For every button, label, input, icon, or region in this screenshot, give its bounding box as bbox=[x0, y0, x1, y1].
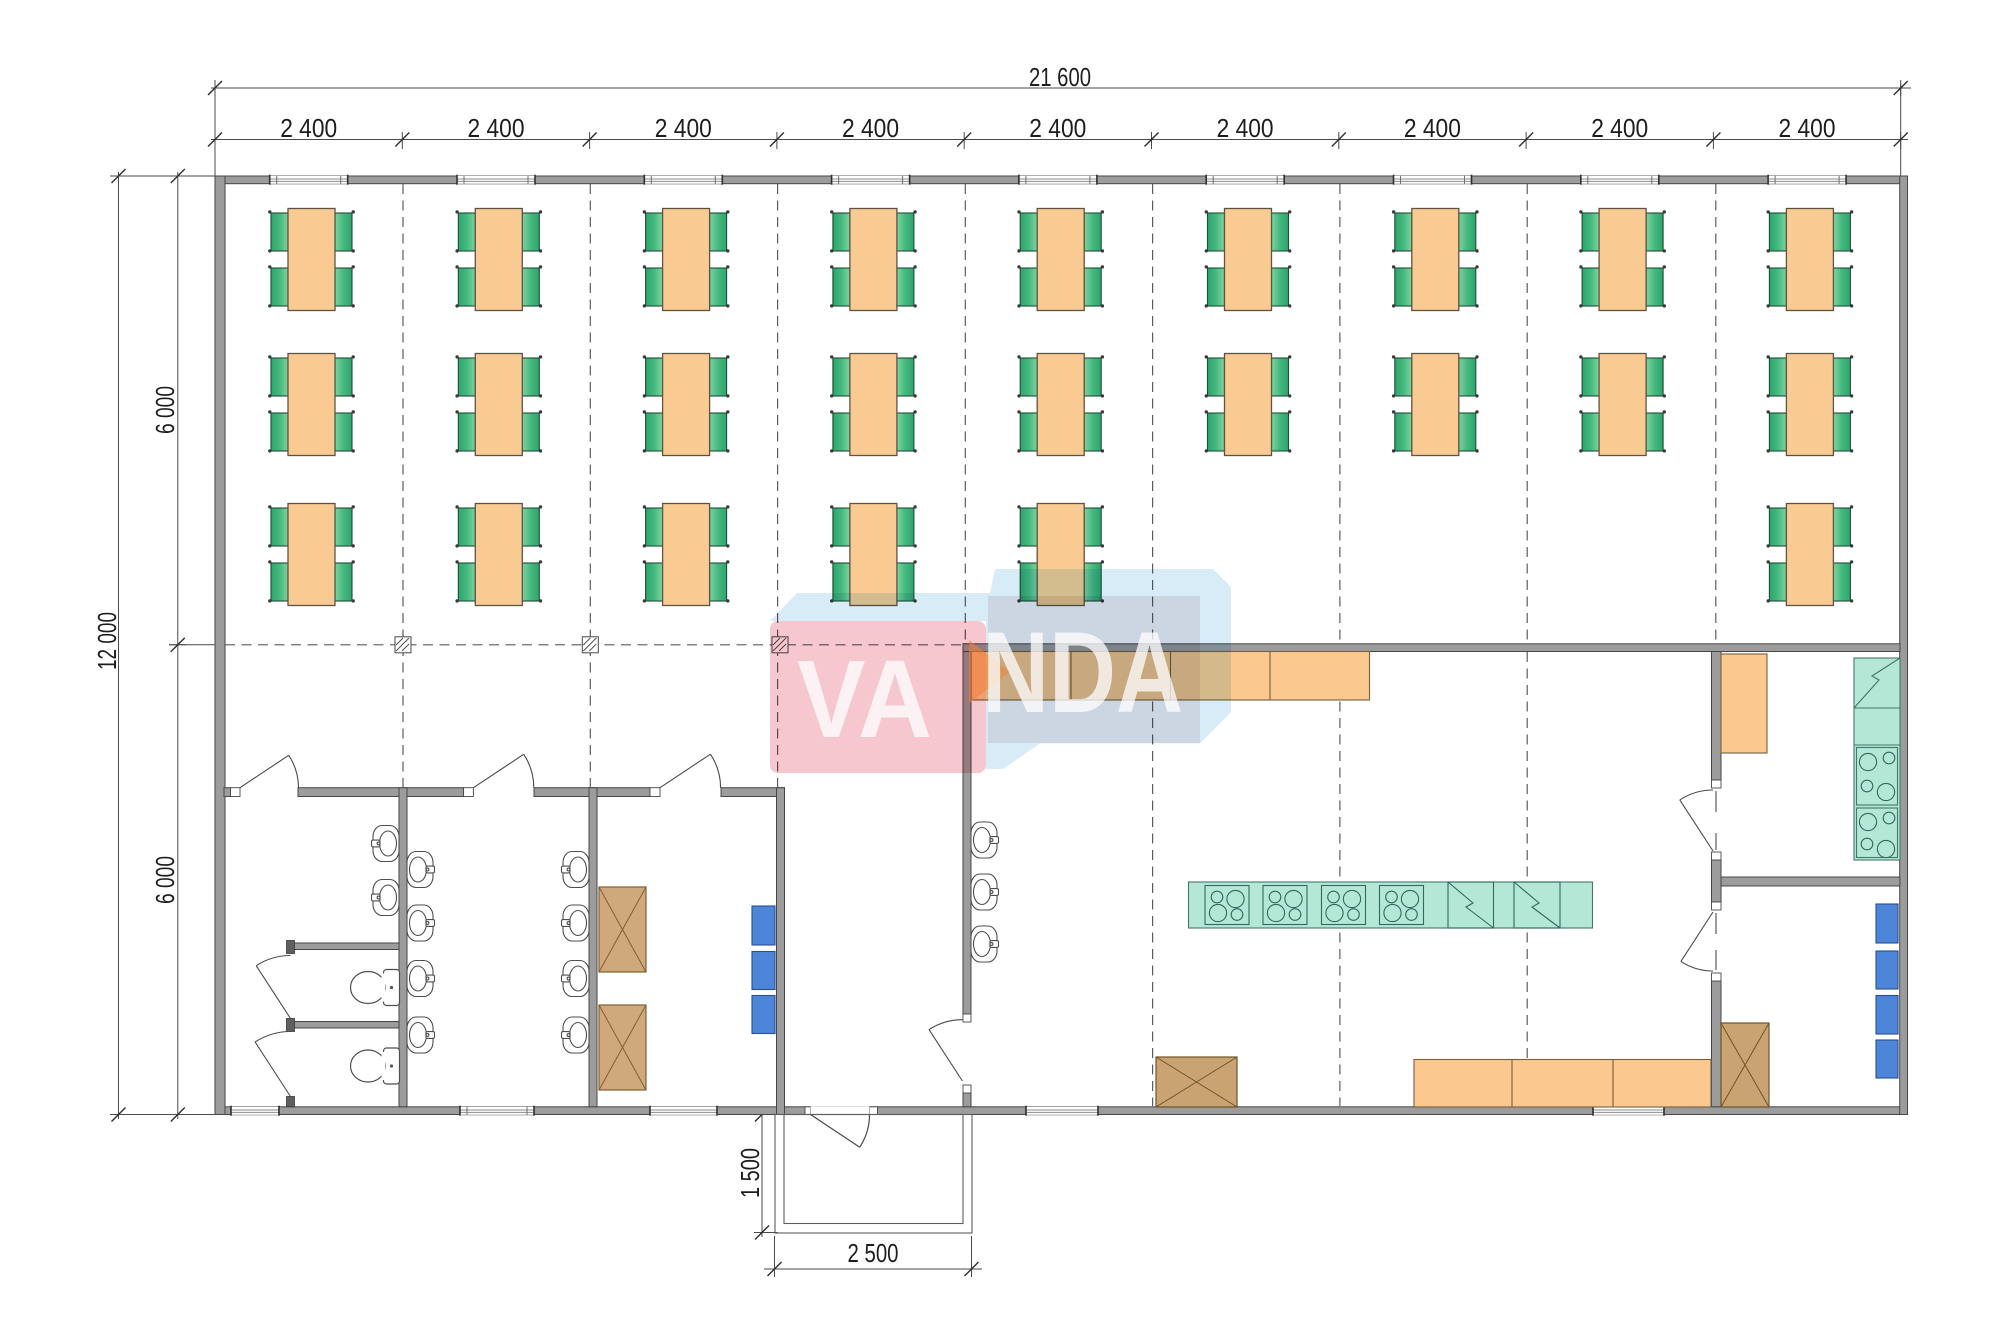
svg-text:2 400: 2 400 bbox=[280, 113, 337, 143]
svg-text:6 000: 6 000 bbox=[150, 856, 180, 904]
svg-text:6 000: 6 000 bbox=[150, 386, 180, 434]
svg-text:VA: VA bbox=[797, 638, 932, 761]
svg-text:NDA: NDA bbox=[982, 609, 1183, 737]
svg-text:2 400: 2 400 bbox=[1404, 113, 1461, 143]
svg-text:2 400: 2 400 bbox=[1029, 113, 1086, 143]
svg-text:21 600: 21 600 bbox=[1029, 62, 1091, 92]
svg-text:2 400: 2 400 bbox=[655, 113, 712, 143]
svg-text:12 000: 12 000 bbox=[92, 612, 122, 670]
svg-text:1 500: 1 500 bbox=[735, 1148, 765, 1198]
svg-text:2 400: 2 400 bbox=[468, 113, 525, 143]
svg-text:2 500: 2 500 bbox=[848, 1238, 899, 1268]
svg-text:2 400: 2 400 bbox=[1217, 113, 1274, 143]
svg-text:2 400: 2 400 bbox=[1779, 113, 1836, 143]
svg-text:2 400: 2 400 bbox=[1591, 113, 1648, 143]
svg-text:2 400: 2 400 bbox=[842, 113, 899, 143]
